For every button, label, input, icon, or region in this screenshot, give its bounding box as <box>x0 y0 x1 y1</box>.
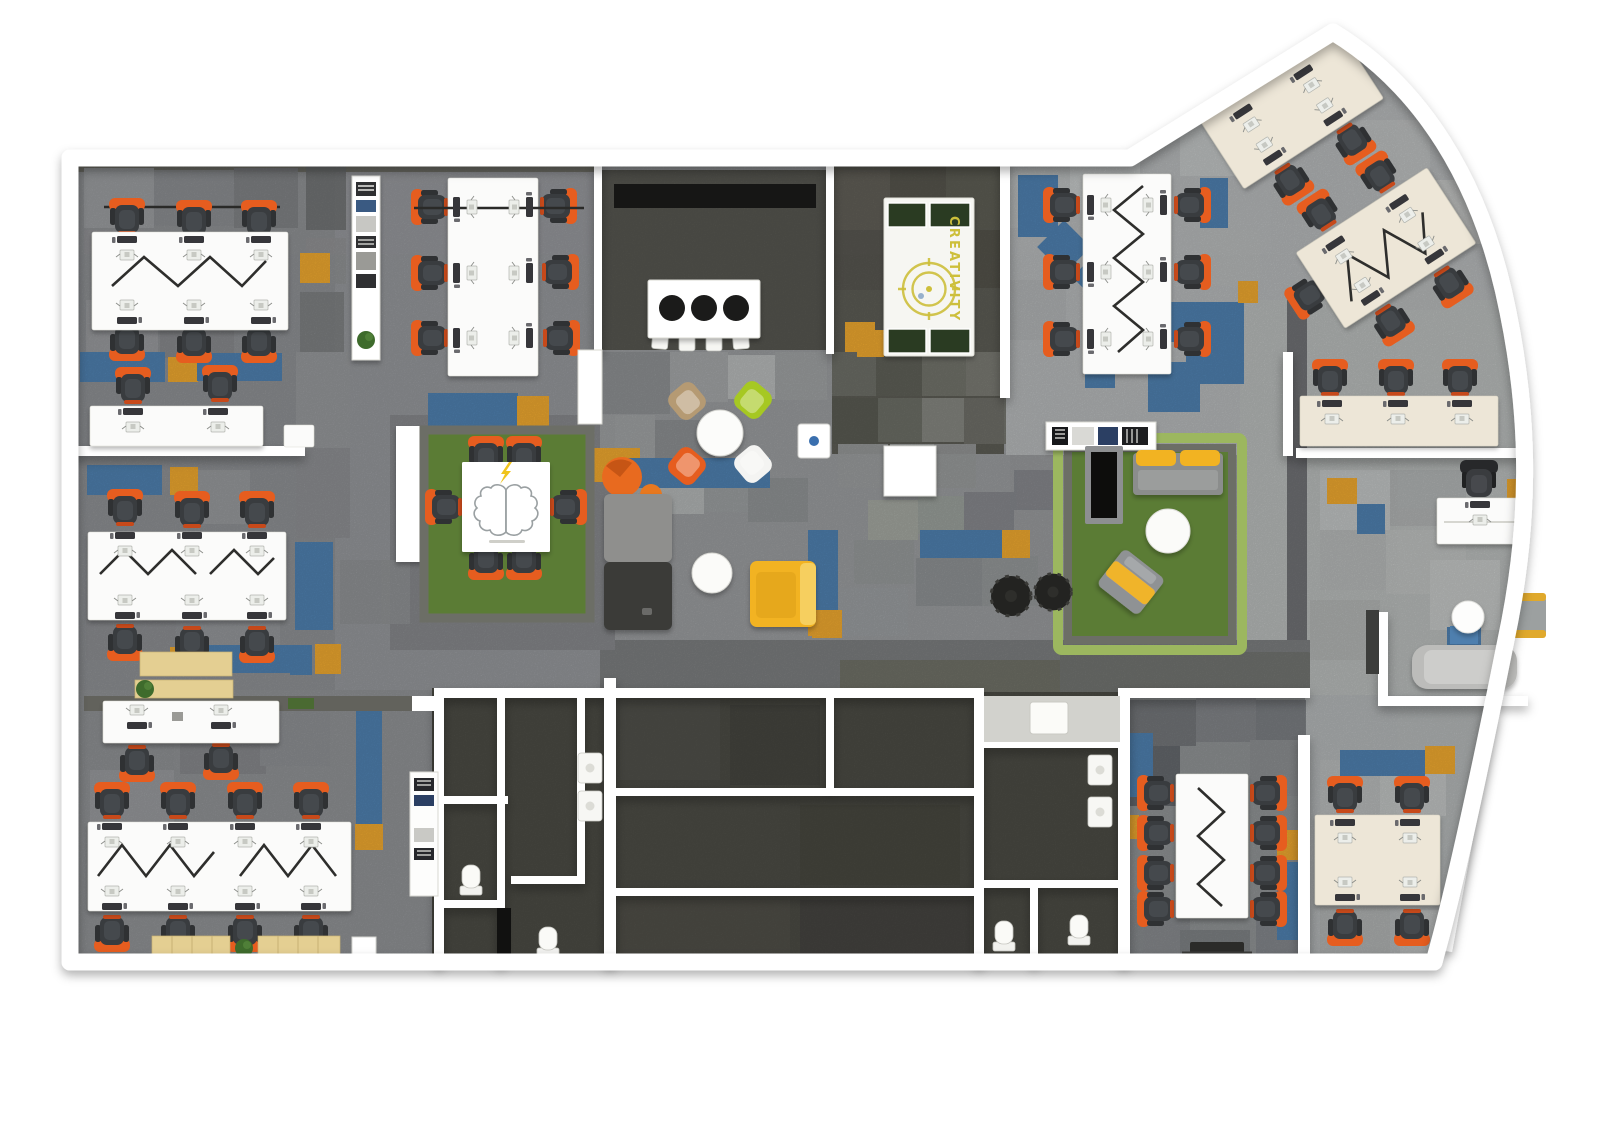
desk <box>1315 815 1440 905</box>
desk-cluster <box>88 489 286 676</box>
plant-icon <box>357 331 375 349</box>
sofa-cushion <box>1180 450 1220 466</box>
sink <box>1088 797 1112 827</box>
desk <box>88 822 351 911</box>
desk-cluster <box>92 198 288 363</box>
desk <box>88 532 286 620</box>
appliance <box>1030 702 1068 734</box>
plant-icon <box>136 680 154 698</box>
tv-screen <box>1085 446 1123 524</box>
lounge-shelf <box>1046 422 1156 450</box>
bar-chair <box>679 337 695 351</box>
pouf <box>1035 574 1072 611</box>
toilet <box>993 921 1015 951</box>
ball-lamp <box>1452 601 1484 633</box>
side-cabinet <box>1366 610 1379 674</box>
bar-chair <box>706 337 722 351</box>
brain-icon <box>474 485 538 535</box>
sofa-cushion <box>1136 450 1176 466</box>
desk-return <box>284 425 314 447</box>
creativity-room: CREATIVITY <box>884 198 974 356</box>
wood-bench <box>140 652 232 676</box>
toilet <box>1068 915 1090 945</box>
round-side-table <box>1146 509 1190 553</box>
lounge-sofa <box>604 494 672 630</box>
wall-desk-row <box>1300 359 1498 446</box>
toilet <box>460 865 482 895</box>
desk-accessory <box>172 712 183 721</box>
yellow-armchair <box>750 561 816 627</box>
sink <box>1088 755 1112 785</box>
garden-sofa <box>1133 450 1223 495</box>
desk <box>92 232 288 330</box>
storage-cabinet <box>578 350 602 424</box>
media-banner <box>614 184 816 208</box>
bar-stool <box>659 295 685 321</box>
brainstorm-caption <box>489 540 525 543</box>
desk-cluster <box>1043 174 1211 374</box>
coffee-table <box>692 553 732 593</box>
bar-stool <box>691 295 717 321</box>
whiteboard-partition <box>396 426 422 562</box>
pouf <box>991 576 1031 616</box>
desk <box>90 406 263 446</box>
dark-media-room <box>614 184 816 208</box>
sink <box>578 753 602 783</box>
floorplan-svg: CREATIVITY <box>0 0 1600 1141</box>
bar-stool <box>723 295 749 321</box>
cube-table <box>884 446 936 496</box>
creativity-label: CREATIVITY <box>946 216 961 322</box>
brainstorm-zone <box>396 426 590 618</box>
water-cooler-bottle <box>809 436 819 446</box>
bookshelf <box>352 176 380 360</box>
sink <box>578 791 602 821</box>
toilet <box>537 927 559 957</box>
cafe-round-table <box>697 410 743 456</box>
office-floorplan: CREATIVITY <box>0 0 1600 1141</box>
